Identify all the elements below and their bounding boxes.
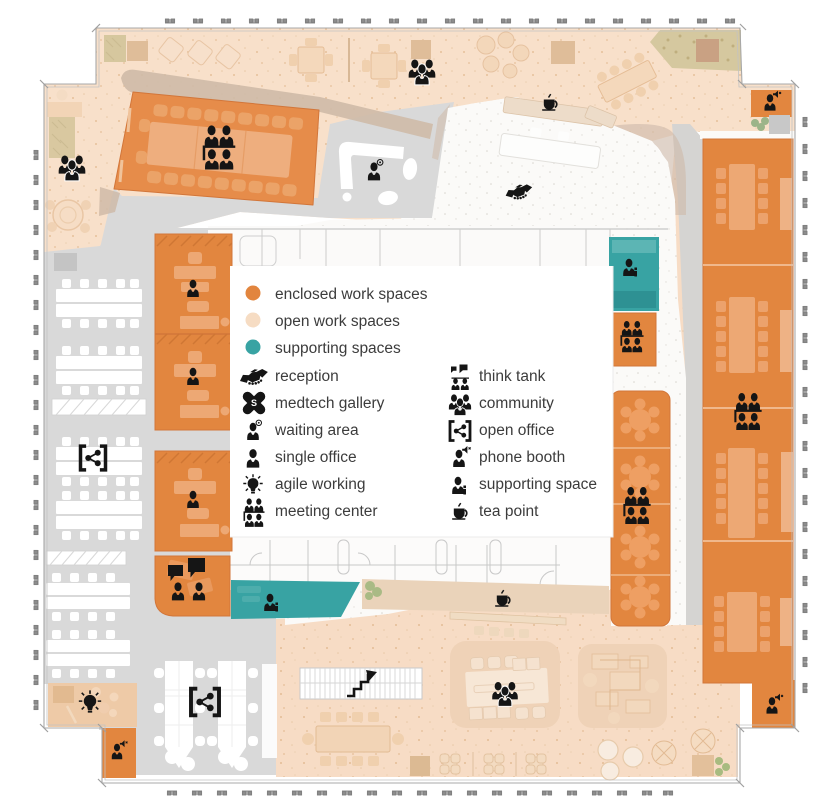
svg-text:waiting area: waiting area — [274, 422, 359, 439]
svg-text:community: community — [479, 395, 554, 412]
svg-text:single office: single office — [275, 449, 357, 466]
svg-text:think tank: think tank — [479, 368, 546, 385]
svg-text:medtech gallery: medtech gallery — [275, 395, 385, 412]
svg-text:agile working: agile working — [275, 476, 365, 493]
svg-text:enclosed work spaces: enclosed work spaces — [275, 286, 428, 303]
svg-text:meeting center: meeting center — [275, 503, 378, 520]
svg-text:open office: open office — [479, 422, 555, 439]
svg-text:supporting space: supporting space — [479, 476, 597, 493]
svg-text:tea point: tea point — [479, 503, 539, 520]
svg-text:supporting spaces: supporting spaces — [275, 340, 401, 357]
svg-text:phone booth: phone booth — [479, 449, 565, 466]
svg-text:reception: reception — [275, 368, 339, 385]
svg-text:open work spaces: open work spaces — [275, 313, 400, 330]
